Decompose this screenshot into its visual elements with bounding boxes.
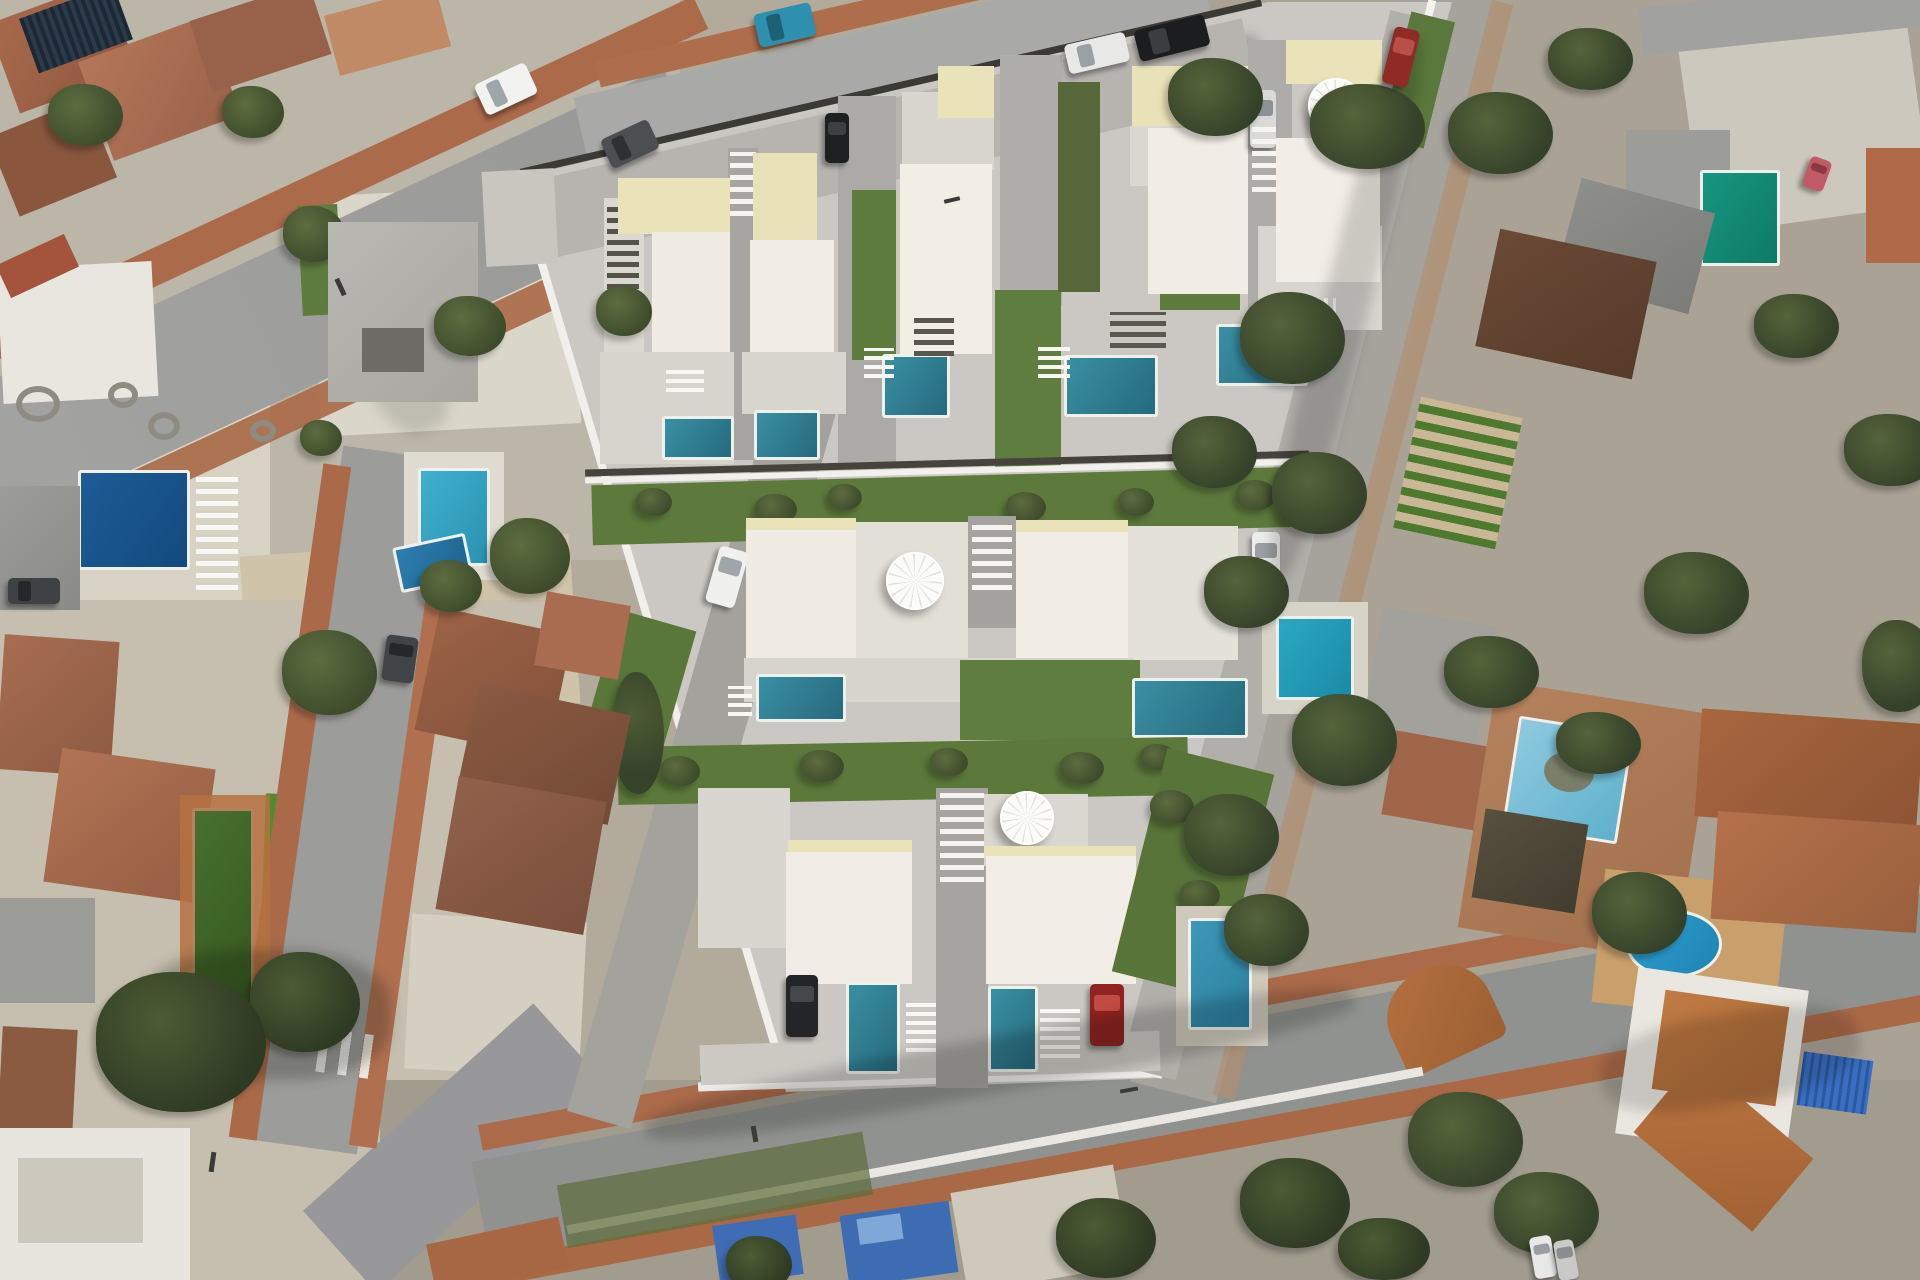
car-suv-top-road-windshield [611,134,633,161]
villa1-pool [662,416,734,460]
row2-bush-6 [1236,480,1276,510]
tree-15 [1754,294,1839,358]
car-black-row3-windshield [790,986,814,1002]
rb-terracotta-mid [1381,730,1489,830]
lm-planter-3 [148,412,180,440]
tree-19 [1556,712,1641,774]
villa1-pergola [618,178,730,234]
tree-palm-entrance [596,286,652,336]
lm-planter-1 [16,386,60,422]
villa2-pergola [753,153,817,243]
lm-planter-4 [250,420,276,442]
car-silver-bottomright-windshield [1556,1246,1573,1259]
villa4-dark-loungers [1110,312,1166,348]
row3-bush-3 [930,748,968,776]
tree-2 [1310,84,1425,169]
tree-30 [1338,1218,1430,1280]
row3-villaA-roof [786,852,912,984]
tree-29 [1240,1158,1350,1248]
tree-7 [1272,452,1367,534]
roof-west-4 [435,776,606,935]
row2-unitB1-pergola [1016,520,1128,532]
row2-unitA1-pergola [746,518,856,530]
car-white-west-drive-windshield [717,556,743,577]
tree-23 [434,296,506,356]
row2-unitA1-roof [746,530,856,658]
villa4-roof [1148,128,1248,294]
car-red-row3-windshield [1094,995,1120,1011]
tree-24 [250,952,360,1052]
tree-10 [1184,794,1279,876]
tl-bush [300,420,342,456]
roof-west-3 [534,591,631,680]
tree-12 [1408,1092,1523,1187]
br-gable-2 [1710,811,1920,933]
tree-9 [1292,694,1397,786]
tree-6 [1172,416,1257,488]
tree-18 [1444,636,1539,708]
row1-driveway-3 [1000,55,1062,305]
tl-outbuilding [482,168,559,267]
row3-villaB-umbrella [1000,791,1054,845]
tree-17 [1644,552,1749,634]
car-white-top-road-windshield [485,79,508,108]
car-black-row1 [825,113,849,163]
villa3-dark-loungers [914,316,954,356]
tree-8 [1204,556,1289,628]
car-black-row1-windshield [828,122,846,135]
villa3-white-loungers [864,348,894,378]
row2-poolA-loungers [728,686,752,716]
lm-planter-2 [108,382,138,408]
tree-1 [1168,58,1263,136]
tree-11 [1224,894,1309,966]
car-black-topeast-road-windshield [1148,27,1171,55]
lm-pool-deep [78,470,190,570]
row2-poolA [756,674,846,722]
row2-unitB1-roof [1016,532,1128,662]
villa5-bridge [1252,126,1276,192]
roof-lb-3 [0,1026,78,1135]
villa1-pool-loungers [666,366,704,392]
row3-villaA-pergola [788,840,912,852]
car-white-topeast-road-windshield [1076,43,1096,69]
row3-bush-2 [800,750,844,782]
lm-dark-car [8,578,60,604]
tree-14 [1592,872,1687,954]
villa2-terrace [742,352,846,414]
roof-lb-gray [0,898,95,1003]
row2-bush-5 [1118,488,1154,516]
row2-umbrella [886,552,944,610]
villa3-pergola [938,66,994,118]
row2-bush-3 [828,484,862,510]
row2-central-bridge [972,518,1012,590]
villa4-white-loungers [1038,346,1070,378]
row2-poolB [1132,678,1248,738]
tree-3 [1448,92,1553,174]
row1-lawn-1 [852,190,896,360]
car-teal-top-road-windshield [765,13,784,41]
car-suv-west-road [381,634,419,684]
row2-bush-1 [636,488,672,516]
tree-5 [1240,292,1345,384]
tree-21 [48,84,123,146]
villa2-pool [754,410,820,460]
tl-tree-2 [490,518,570,594]
car-red-east-road-windshield [1392,37,1415,56]
car-pink-right-windshield [1810,162,1829,176]
row1-hedge [1058,82,1100,292]
tree-22 [222,86,284,138]
villa4-pool [1064,355,1158,417]
lm-dark-car-windshield [18,581,30,601]
car-suv-west-road-windshield [388,643,414,658]
tree-25 [96,972,266,1112]
br-pergola-dark [1472,808,1589,913]
row3-bush-1 [660,756,700,786]
tree-4 [1548,28,1633,90]
tree-28 [1056,1198,1156,1278]
row3-bush-4 [1060,752,1104,784]
tree-26 [282,630,377,715]
rb-turquoise-pool [1276,616,1354,700]
car-black-row3 [786,975,818,1037]
villa1-roof [652,232,730,356]
car-white-bottomright-windshield [1532,1242,1550,1256]
row3-central-bridge [940,790,984,882]
tree-27 [420,560,482,612]
row3-villaA-deck [698,788,790,948]
tl-house-wing [362,328,424,372]
rb-orange-corner [1866,148,1920,263]
aerial-development-photo [0,0,1920,1280]
row1-lawn-2 [995,290,1061,470]
row2-lawn-east [960,660,1140,740]
lb-roof-equipment [18,1158,143,1243]
lm-loungers [196,470,238,590]
